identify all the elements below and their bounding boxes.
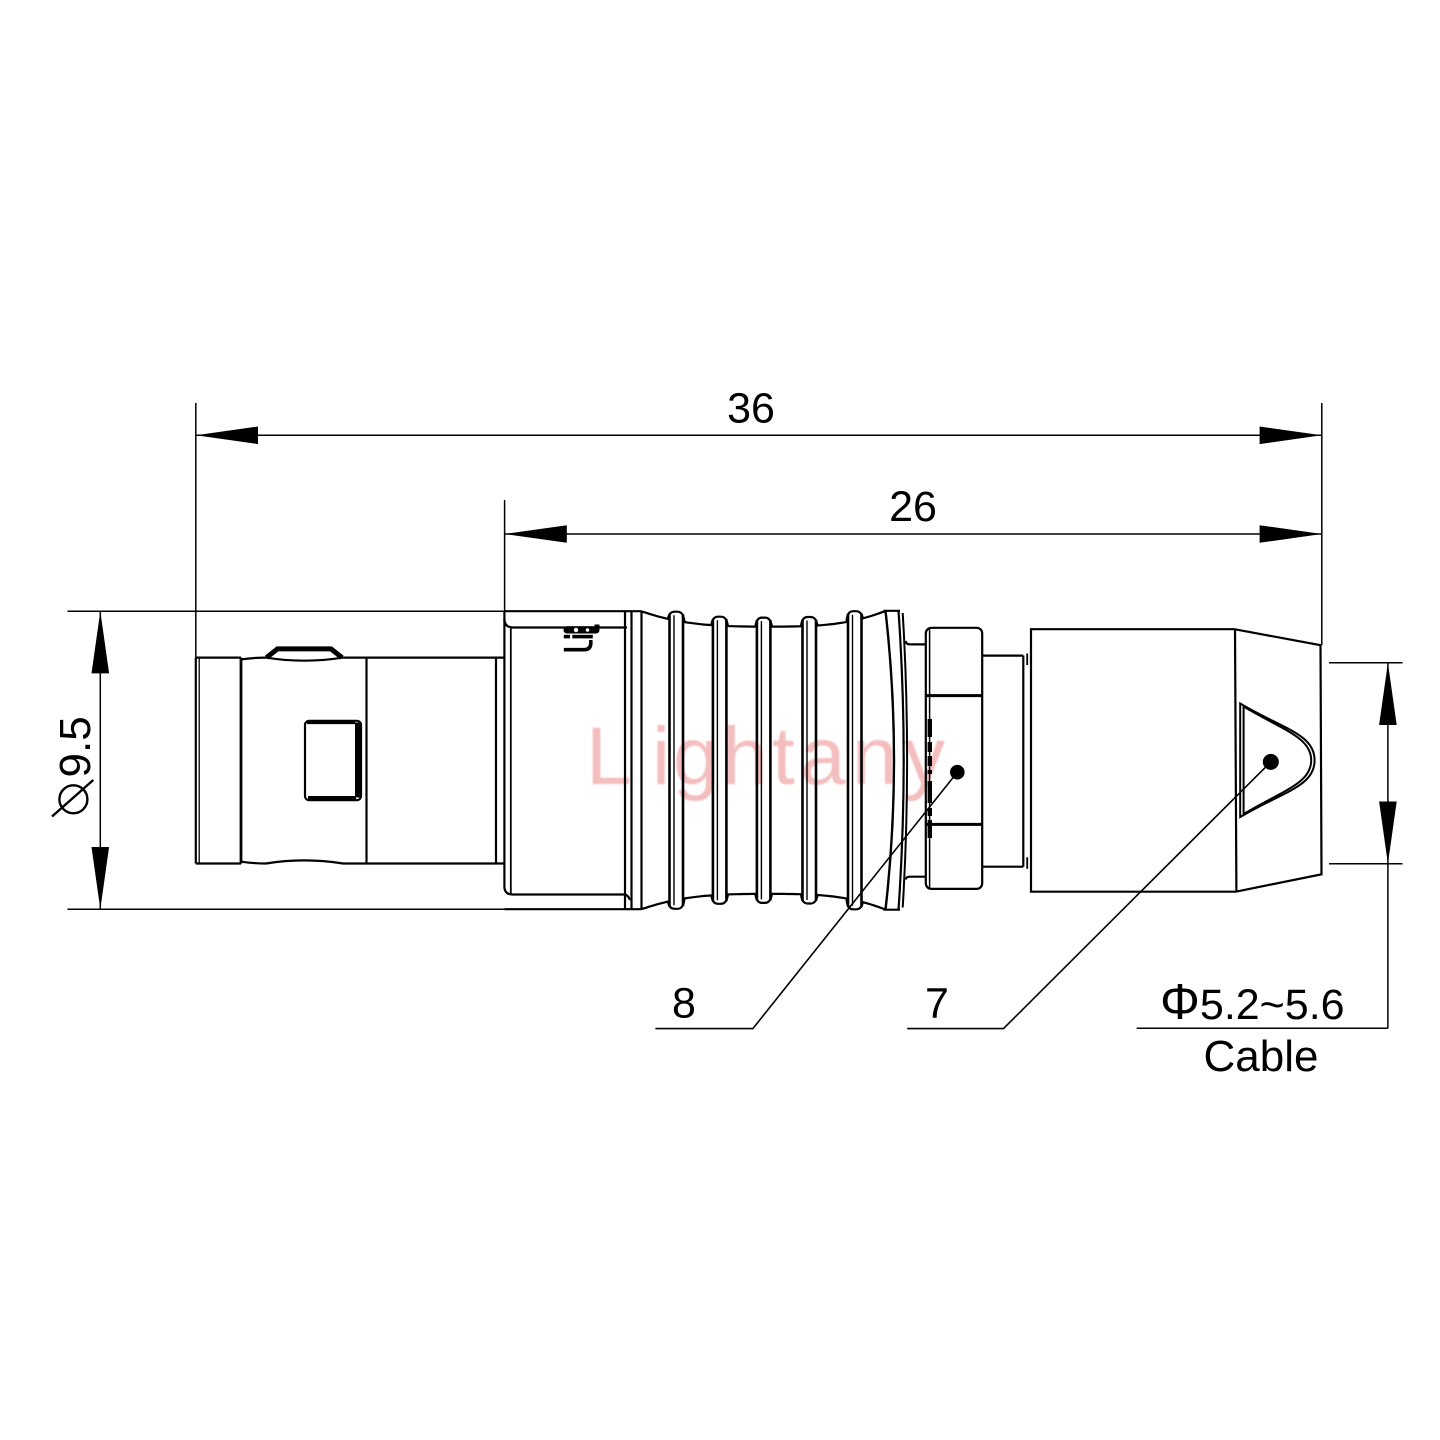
svg-text:26: 26 — [889, 483, 937, 531]
svg-text:8: 8 — [672, 980, 696, 1028]
svg-text:7: 7 — [925, 980, 949, 1028]
svg-text:Cable: Cable — [1204, 1032, 1319, 1081]
svg-text:36: 36 — [727, 385, 775, 433]
svg-text:Φ5.2~5.6: Φ5.2~5.6 — [1160, 974, 1345, 1030]
svg-text:9.5: 9.5 — [51, 716, 100, 777]
